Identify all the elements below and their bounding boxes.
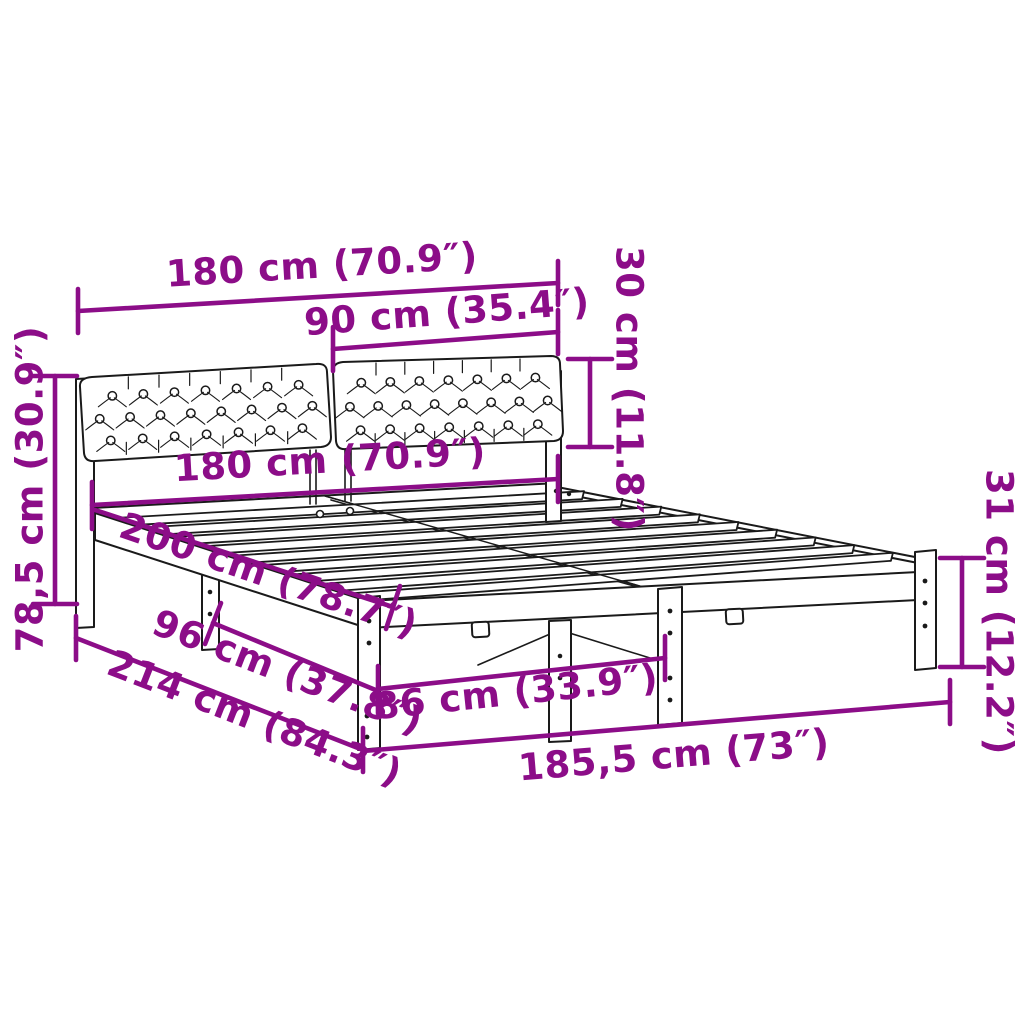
dimension-diagram-page: 180 cm (70.9″) 90 cm (35.4″) 30 cm (11.8… [0, 0, 1024, 1024]
rail-clip-left [472, 622, 490, 638]
bed-dimension-diagram: 180 cm (70.9″) 90 cm (35.4″) 30 cm (11.8… [0, 0, 1024, 1024]
brace-left [478, 631, 557, 665]
label-cushion-height: 30 cm (11.8″) [608, 246, 651, 532]
front-right-leg [915, 550, 936, 670]
dim-leg-height [940, 558, 984, 667]
dim-cushion-height [568, 359, 612, 447]
brace-right [563, 631, 650, 658]
front-middle-leg [658, 587, 682, 725]
rail-clip-right [726, 609, 744, 625]
label-headboard-total-width: 180 cm (70.9″) [165, 234, 479, 295]
label-front-leg-spacing: 86 cm (33.9″) [371, 656, 660, 729]
label-headboard-height: 78,5 cm (30.9″) [9, 326, 52, 653]
label-leg-height: 31 cm (12.2″) [978, 469, 1021, 755]
